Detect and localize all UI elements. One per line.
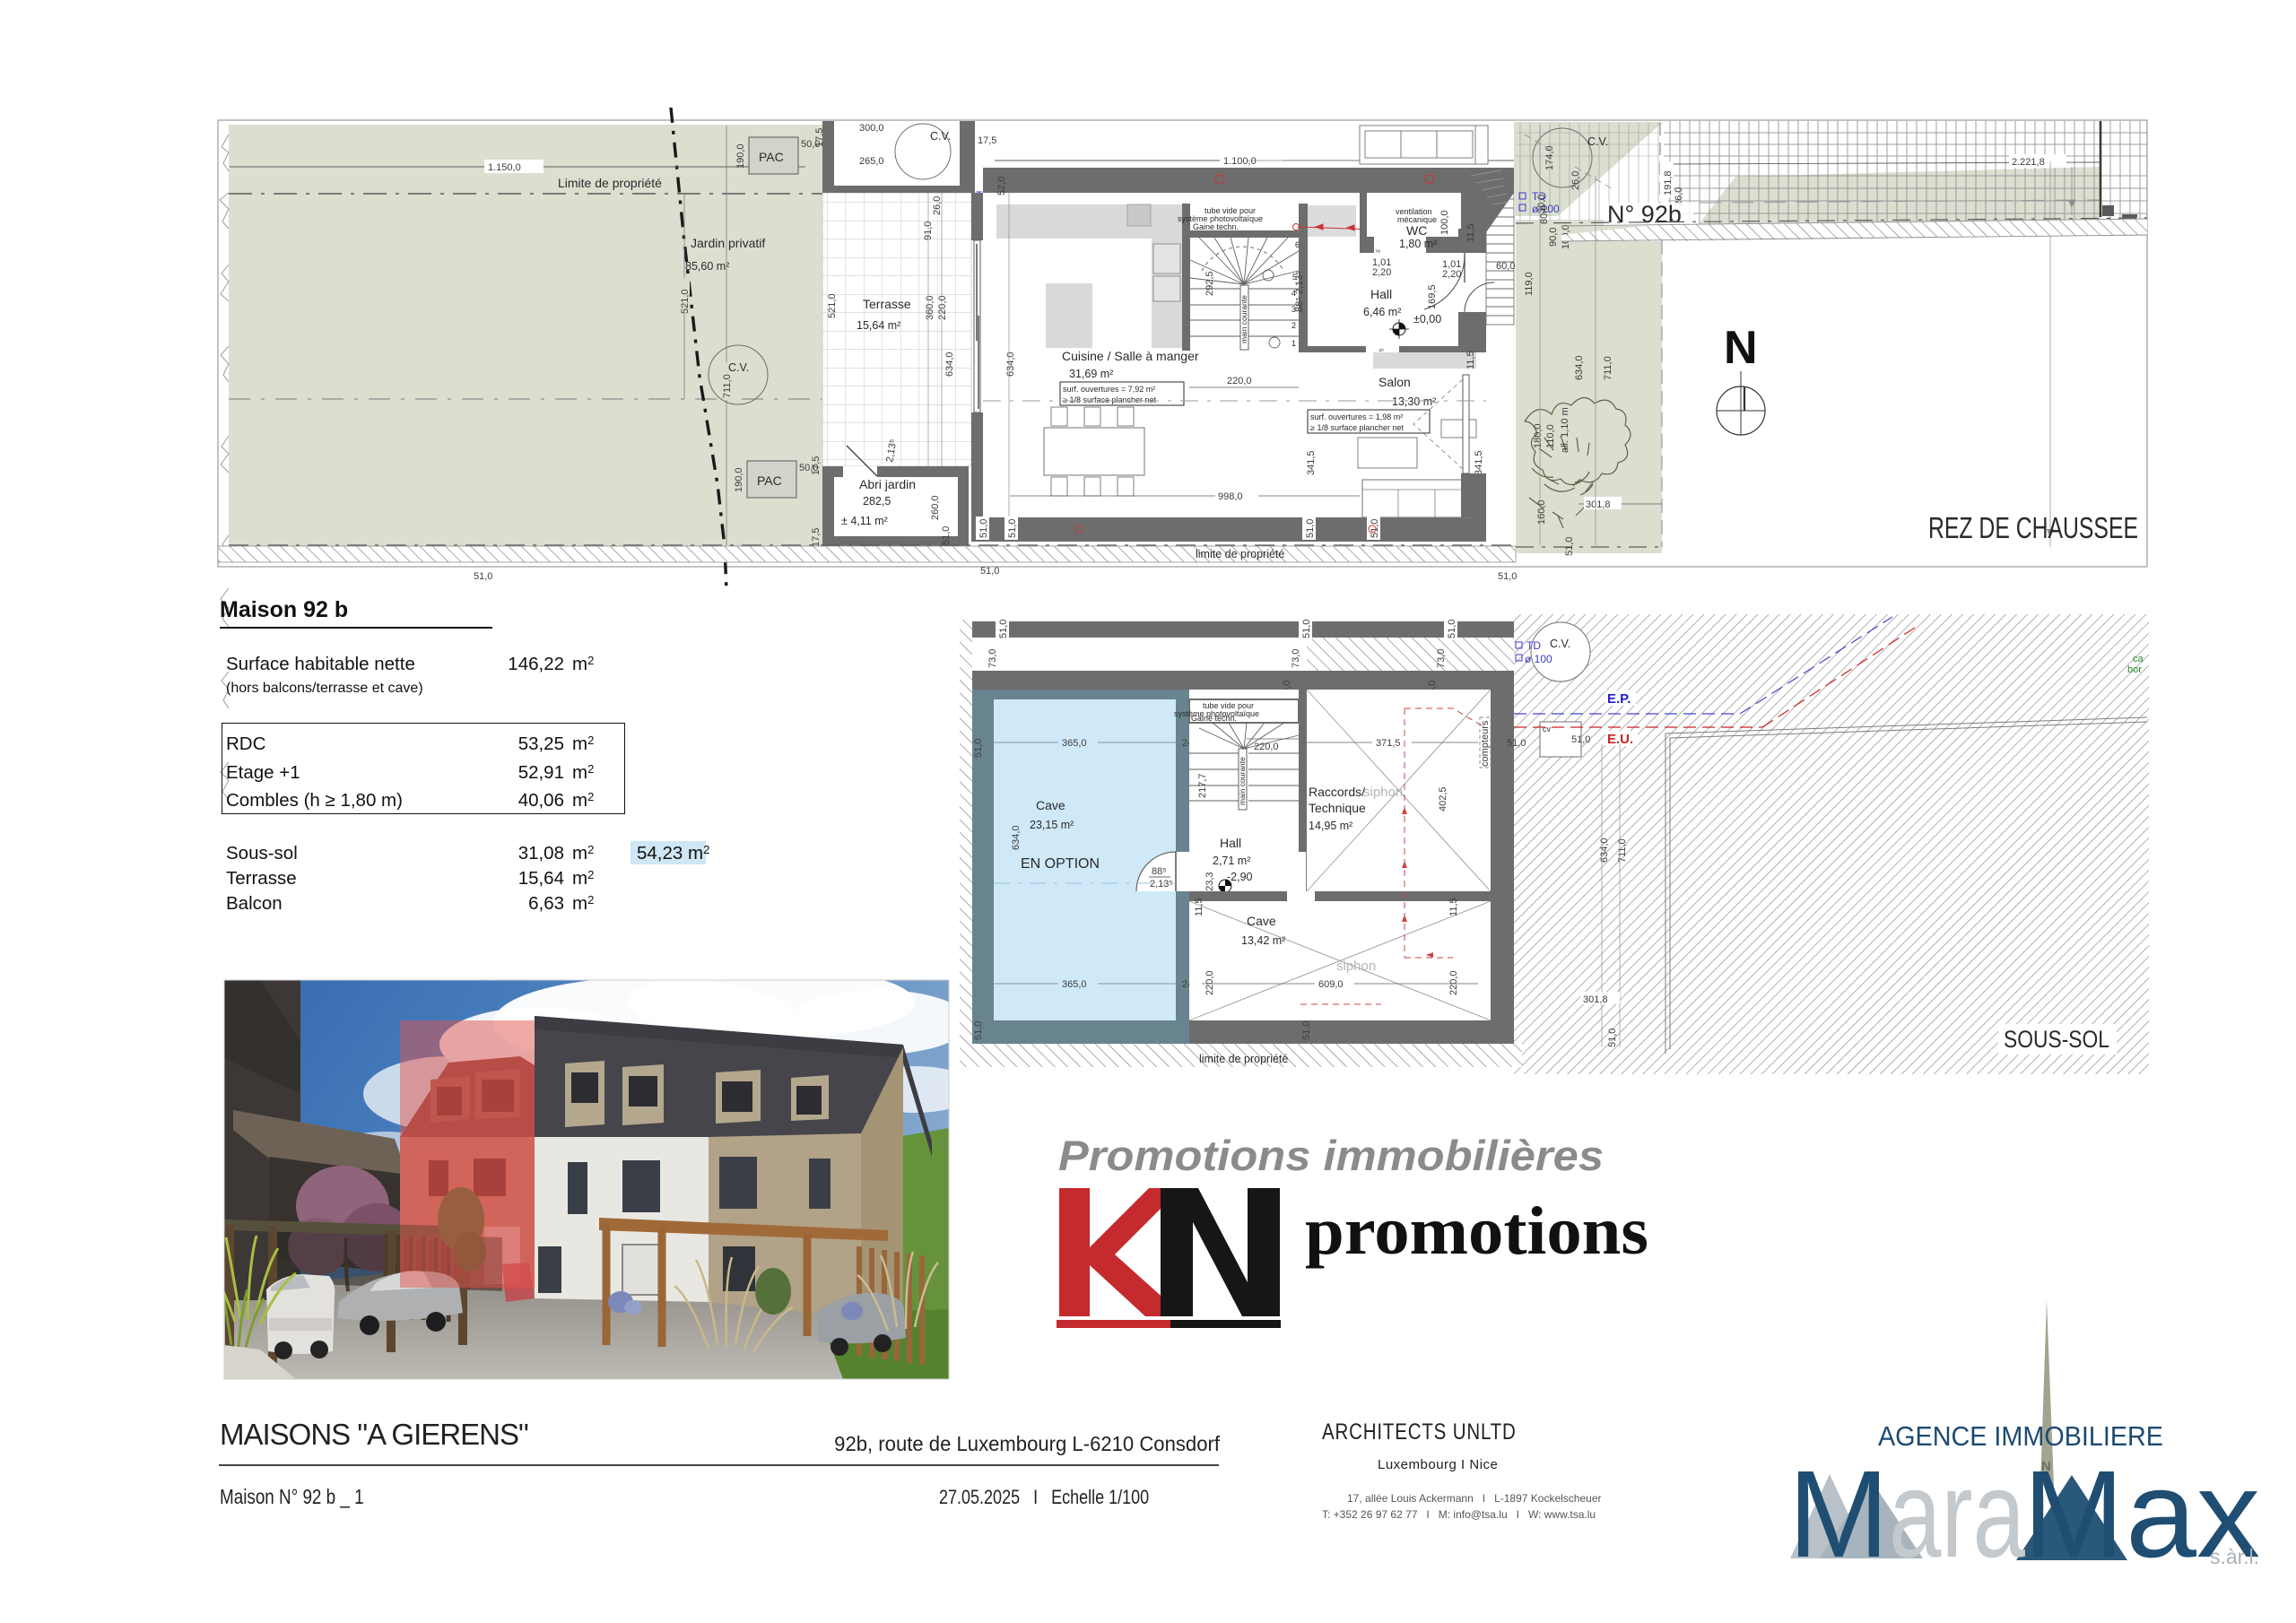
svg-text:REZ DE CHAUSSEE: REZ DE CHAUSSEE: [1928, 511, 2138, 544]
svg-text:17,5: 17,5: [978, 135, 996, 146]
svg-text:365,0: 365,0: [1062, 979, 1087, 990]
svg-text:Technique: Technique: [1309, 801, 1366, 815]
svg-text:51,0: 51,0: [1447, 620, 1457, 638]
svg-text:51,0: 51,0: [1370, 519, 1380, 538]
svg-text:30,0: 30,0: [1539, 205, 1550, 224]
svg-text:265,0: 265,0: [859, 156, 884, 167]
svg-text:2: 2: [1291, 321, 1296, 330]
svg-text:C.V.: C.V.: [1550, 638, 1570, 650]
svg-text:521,0: 521,0: [827, 293, 838, 318]
svg-text:Cuisine / Salle à manger: Cuisine / Salle à manger: [1062, 349, 1199, 363]
svg-text:402,5: 402,5: [1438, 786, 1448, 811]
svg-text:220,0: 220,0: [937, 295, 948, 320]
svg-text:260,0: 260,0: [930, 495, 941, 520]
svg-text:2,71 m²: 2,71 m²: [1213, 855, 1250, 867]
svg-text:85,60 m²: 85,60 m²: [685, 260, 729, 273]
svg-text:2,13⁵: 2,13⁵: [1150, 879, 1173, 890]
svg-text:11,5: 11,5: [1465, 351, 1476, 369]
svg-text:13,42 m²: 13,42 m²: [1241, 934, 1285, 947]
svg-text:31,69 m²: 31,69 m²: [1069, 368, 1113, 380]
svg-text:C.V.: C.V.: [930, 130, 951, 143]
svg-text:73,0: 73,0: [1291, 649, 1301, 668]
svg-text:51,0: 51,0: [973, 739, 984, 758]
svg-text:51,0: 51,0: [973, 1021, 984, 1040]
svg-text:110,0: 110,0: [1545, 424, 1556, 448]
svg-text:51,0: 51,0: [978, 519, 989, 538]
svg-text:1.150,0: 1.150,0: [488, 162, 521, 173]
svg-text:711,0: 711,0: [1603, 356, 1613, 380]
svg-text:190,0: 190,0: [734, 467, 744, 492]
svg-text:169,5: 169,5: [1427, 284, 1438, 309]
svg-text:365,0: 365,0: [1062, 738, 1087, 749]
svg-text:711,0: 711,0: [722, 374, 733, 398]
svg-text:N: N: [1724, 322, 1758, 374]
svg-text:634,0: 634,0: [1005, 352, 1016, 377]
svg-text:217,7: 217,7: [1197, 773, 1208, 798]
svg-text:51,0: 51,0: [1564, 537, 1575, 556]
svg-text:Gaine techn.: Gaine techn.: [1193, 222, 1239, 231]
svg-text:promotions: promotions: [1305, 1193, 1648, 1269]
svg-text:-2,90: -2,90: [1227, 871, 1253, 883]
svg-text:1.100,0: 1.100,0: [1223, 156, 1257, 167]
svg-text:180,0: 180,0: [1533, 423, 1544, 448]
svg-text:M: M: [2023, 1445, 2124, 1584]
svg-text:160,0: 160,0: [1536, 499, 1547, 525]
svg-text:E.P.: E.P.: [1607, 691, 1631, 707]
svg-text:Hall: Hall: [1370, 287, 1392, 301]
svg-text:190,0: 190,0: [735, 143, 746, 169]
svg-text:Cave: Cave: [1247, 914, 1276, 928]
svg-text:Gaine techn.: Gaine techn.: [1191, 714, 1237, 723]
svg-text:EN OPTION: EN OPTION: [1021, 856, 1100, 872]
svg-text:main courante: main courante: [1239, 295, 1248, 343]
svg-text:Cave: Cave: [1036, 798, 1065, 812]
svg-text:360,0: 360,0: [925, 295, 935, 320]
svg-text:220,0: 220,0: [1448, 970, 1459, 995]
svg-text:521,0: 521,0: [680, 289, 691, 314]
svg-text:E.U.: E.U.: [1607, 732, 1633, 747]
svg-text:SOUS-SOL: SOUS-SOL: [2004, 1026, 2109, 1053]
svg-text:M: M: [1788, 1445, 1889, 1584]
svg-text:371,5: 371,5: [1376, 738, 1401, 749]
svg-text:51,0: 51,0: [1607, 1028, 1618, 1047]
svg-text:surf. ouvertures = 7,92 m²: surf. ouvertures = 7,92 m²: [1063, 385, 1155, 394]
svg-text:88⁵: 88⁵: [1152, 866, 1167, 877]
svg-text:220,0: 220,0: [1227, 376, 1252, 386]
svg-text:634,0: 634,0: [1599, 838, 1610, 863]
svg-text:Abri jardin: Abri jardin: [859, 477, 916, 491]
svg-text:surf. ouvertures = 1,98 m²: surf. ouvertures = 1,98 m²: [1310, 412, 1403, 421]
svg-text:88⁵ 2,13⁵: 88⁵ 2,13⁵: [1294, 271, 1305, 312]
svg-text:191,8: 191,8: [1663, 170, 1674, 195]
svg-text:11,5: 11,5: [1194, 898, 1205, 916]
svg-text:Limite de propriété: Limite de propriété: [558, 176, 662, 190]
svg-text:Hall: Hall: [1220, 836, 1241, 850]
svg-text:6,46 m²: 6,46 m²: [1363, 306, 1401, 318]
svg-text:limite de propriété: limite de propriété: [1196, 548, 1284, 560]
svg-text:220,0: 220,0: [1254, 742, 1279, 752]
svg-text:26,0: 26,0: [932, 196, 943, 215]
svg-text:Raccords/: Raccords/: [1309, 785, 1365, 799]
svg-text:301,8: 301,8: [1586, 499, 1611, 510]
svg-text:90,0: 90,0: [1548, 228, 1559, 247]
svg-text:51,0: 51,0: [980, 566, 999, 577]
svg-text:11,5: 11,5: [1448, 898, 1459, 916]
svg-text:51,0: 51,0: [941, 526, 952, 545]
svg-text:14,95 m²: 14,95 m²: [1309, 820, 1352, 832]
svg-text:limite de propriété: limite de propriété: [1199, 1053, 1288, 1065]
svg-text:Salon: Salon: [1378, 375, 1411, 389]
svg-text:PAC: PAC: [757, 473, 782, 488]
svg-text:1: 1: [1291, 339, 1296, 348]
svg-text:52,0: 52,0: [996, 177, 1007, 195]
svg-text:634,0: 634,0: [944, 352, 955, 377]
svg-text:2,20: 2,20: [1372, 267, 1391, 278]
svg-text:cv: cv: [1543, 725, 1552, 733]
svg-text:711,0: 711,0: [1617, 838, 1628, 863]
svg-text:73,0: 73,0: [987, 649, 998, 668]
svg-text:main courante: main courante: [1238, 757, 1247, 805]
svg-text:C.V.: C.V.: [1587, 135, 1608, 148]
svg-text:51,0: 51,0: [998, 620, 1009, 638]
svg-text:ara: ara: [1889, 1445, 2025, 1584]
svg-text:51,0: 51,0: [1305, 519, 1316, 538]
svg-text:341,5: 341,5: [1474, 450, 1484, 475]
svg-text:17,5: 17,5: [811, 456, 822, 475]
svg-text:C.V.: C.V.: [728, 361, 749, 374]
svg-text:119,0: 119,0: [1524, 272, 1535, 296]
svg-text:13,30 m²: 13,30 m²: [1392, 395, 1436, 408]
svg-text:300,0: 300,0: [859, 123, 884, 134]
svg-text:bor: bor: [2127, 664, 2142, 675]
svg-text:51,0: 51,0: [1571, 734, 1590, 745]
svg-text:634,0: 634,0: [1574, 355, 1585, 380]
svg-text:51,0: 51,0: [1507, 738, 1526, 749]
svg-text:23,15 m²: 23,15 m²: [1030, 819, 1074, 831]
svg-text:60,0: 60,0: [1496, 261, 1515, 272]
svg-text:1,80 m²: 1,80 m²: [1399, 238, 1437, 250]
svg-text:TD: TD: [1532, 190, 1546, 203]
svg-text:301,8: 301,8: [1583, 994, 1608, 1005]
svg-text:WC: WC: [1406, 223, 1427, 238]
svg-text:siphon: siphon: [1336, 959, 1376, 974]
svg-text:PAC: PAC: [759, 150, 784, 164]
svg-text:all. 1,10 m: all. 1,10 m: [1560, 407, 1570, 453]
svg-text:51,0: 51,0: [1498, 571, 1517, 582]
svg-text:998,0: 998,0: [1218, 491, 1243, 502]
svg-text:2.221,8: 2.221,8: [2012, 157, 2045, 168]
svg-text:341,5: 341,5: [1306, 450, 1317, 475]
svg-text:51,0: 51,0: [1301, 620, 1312, 638]
svg-text:N° 92b: N° 92b: [1607, 201, 1682, 228]
svg-text:Jardin privatif: Jardin privatif: [691, 236, 765, 250]
svg-text:11,5: 11,5: [1465, 223, 1476, 242]
svg-text:Terrasse: Terrasse: [863, 297, 911, 311]
svg-text:s.àr.l.: s.àr.l.: [2210, 1545, 2259, 1568]
svg-text:2,20: 2,20: [1442, 269, 1461, 280]
svg-text:51,0: 51,0: [1301, 1021, 1312, 1040]
svg-text:100,0: 100,0: [1439, 210, 1450, 235]
svg-text:compteurs: compteurs: [1480, 720, 1491, 767]
svg-text:51,0: 51,0: [1007, 519, 1018, 538]
svg-text:292,5: 292,5: [1205, 271, 1215, 296]
svg-text:ca: ca: [2133, 654, 2144, 664]
svg-text:73,0: 73,0: [1436, 649, 1447, 668]
svg-text:609,0: 609,0: [1318, 979, 1344, 990]
svg-text:≥ 1/8 surface plancher net: ≥ 1/8 surface plancher net: [1063, 395, 1157, 404]
svg-text:≥ 1/8 surface plancher net: ≥ 1/8 surface plancher net: [1310, 423, 1405, 432]
svg-text:± 4,11 m²: ± 4,11 m²: [841, 515, 888, 527]
svg-text:51,0: 51,0: [474, 571, 492, 582]
svg-text:17,5: 17,5: [811, 528, 822, 547]
svg-text:siphon: siphon: [1363, 785, 1403, 800]
svg-text:TD: TD: [1526, 639, 1541, 652]
svg-text:ø 100: ø 100: [1525, 653, 1552, 665]
svg-text:Promotions immobilières: Promotions immobilières: [1058, 1132, 1604, 1179]
svg-text:282,5: 282,5: [863, 495, 891, 508]
svg-text:26,0: 26,0: [1570, 171, 1581, 190]
svg-text:±0,00: ±0,00: [1413, 313, 1441, 325]
svg-text:634,0: 634,0: [1011, 825, 1022, 850]
svg-text:220,0: 220,0: [1205, 970, 1215, 995]
svg-text:15,64 m²: 15,64 m²: [857, 319, 900, 332]
